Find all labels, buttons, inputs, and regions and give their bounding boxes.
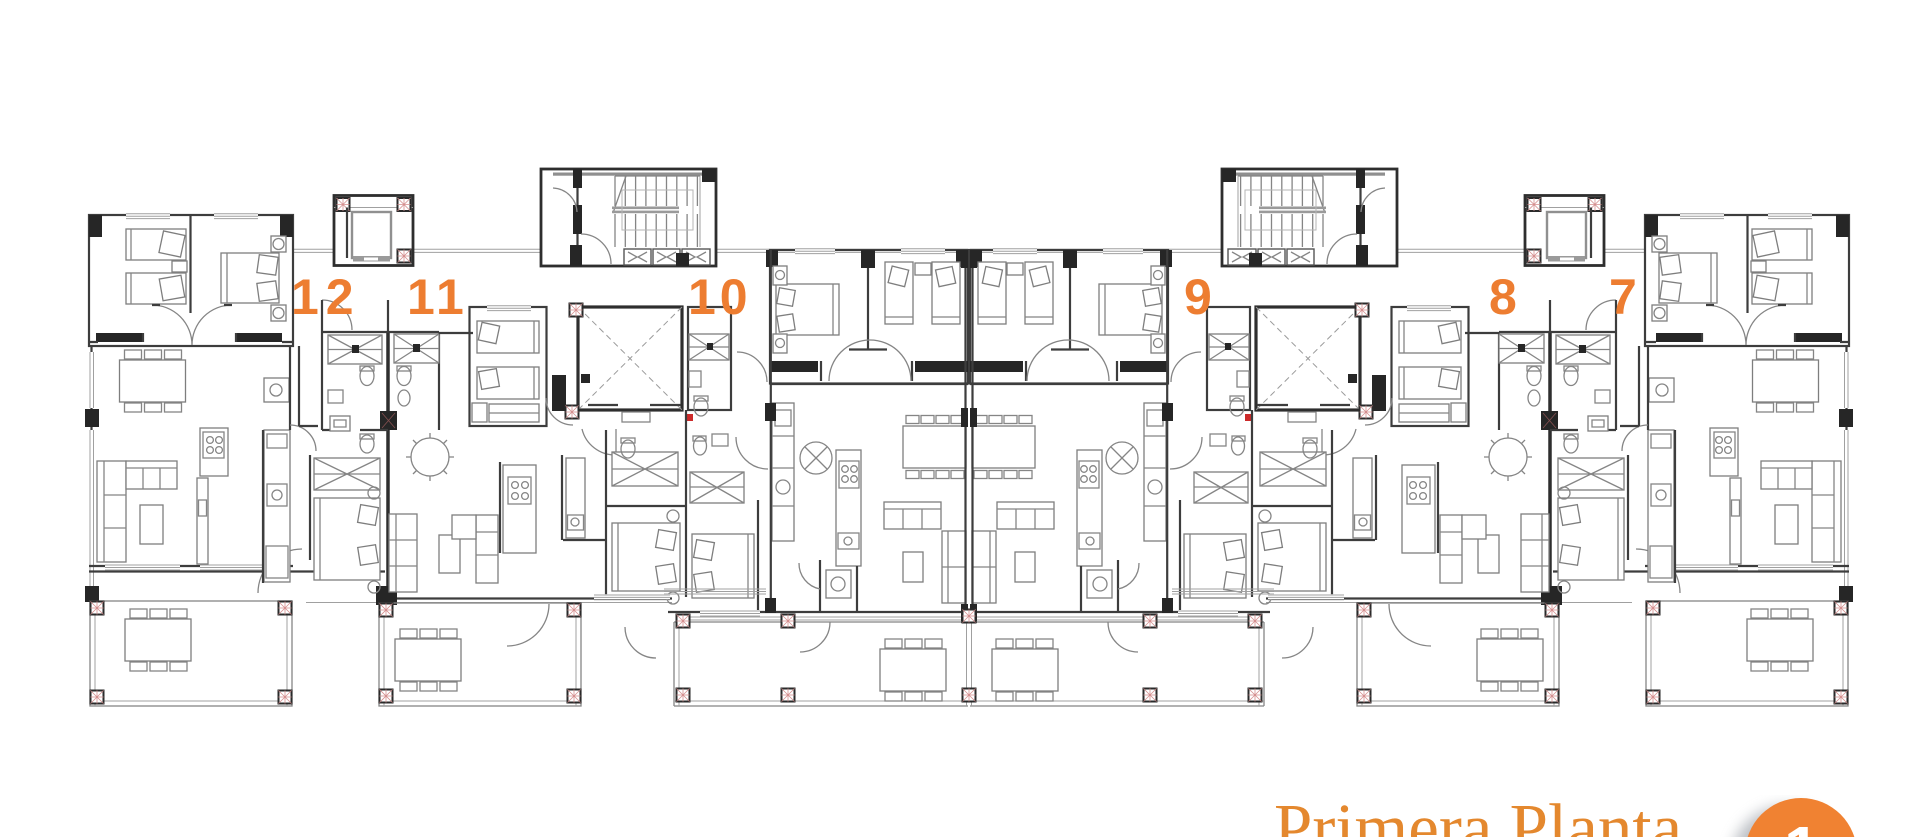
- svg-text:12: 12: [291, 269, 361, 325]
- svg-text:9: 9: [1184, 269, 1212, 325]
- svg-text:11: 11: [407, 269, 468, 325]
- svg-text:8: 8: [1489, 269, 1517, 325]
- svg-text:10: 10: [688, 269, 752, 325]
- svg-text:Primera Planta: Primera Planta: [1274, 790, 1682, 837]
- svg-text:1: 1: [1784, 813, 1820, 837]
- svg-text:7: 7: [1609, 269, 1637, 325]
